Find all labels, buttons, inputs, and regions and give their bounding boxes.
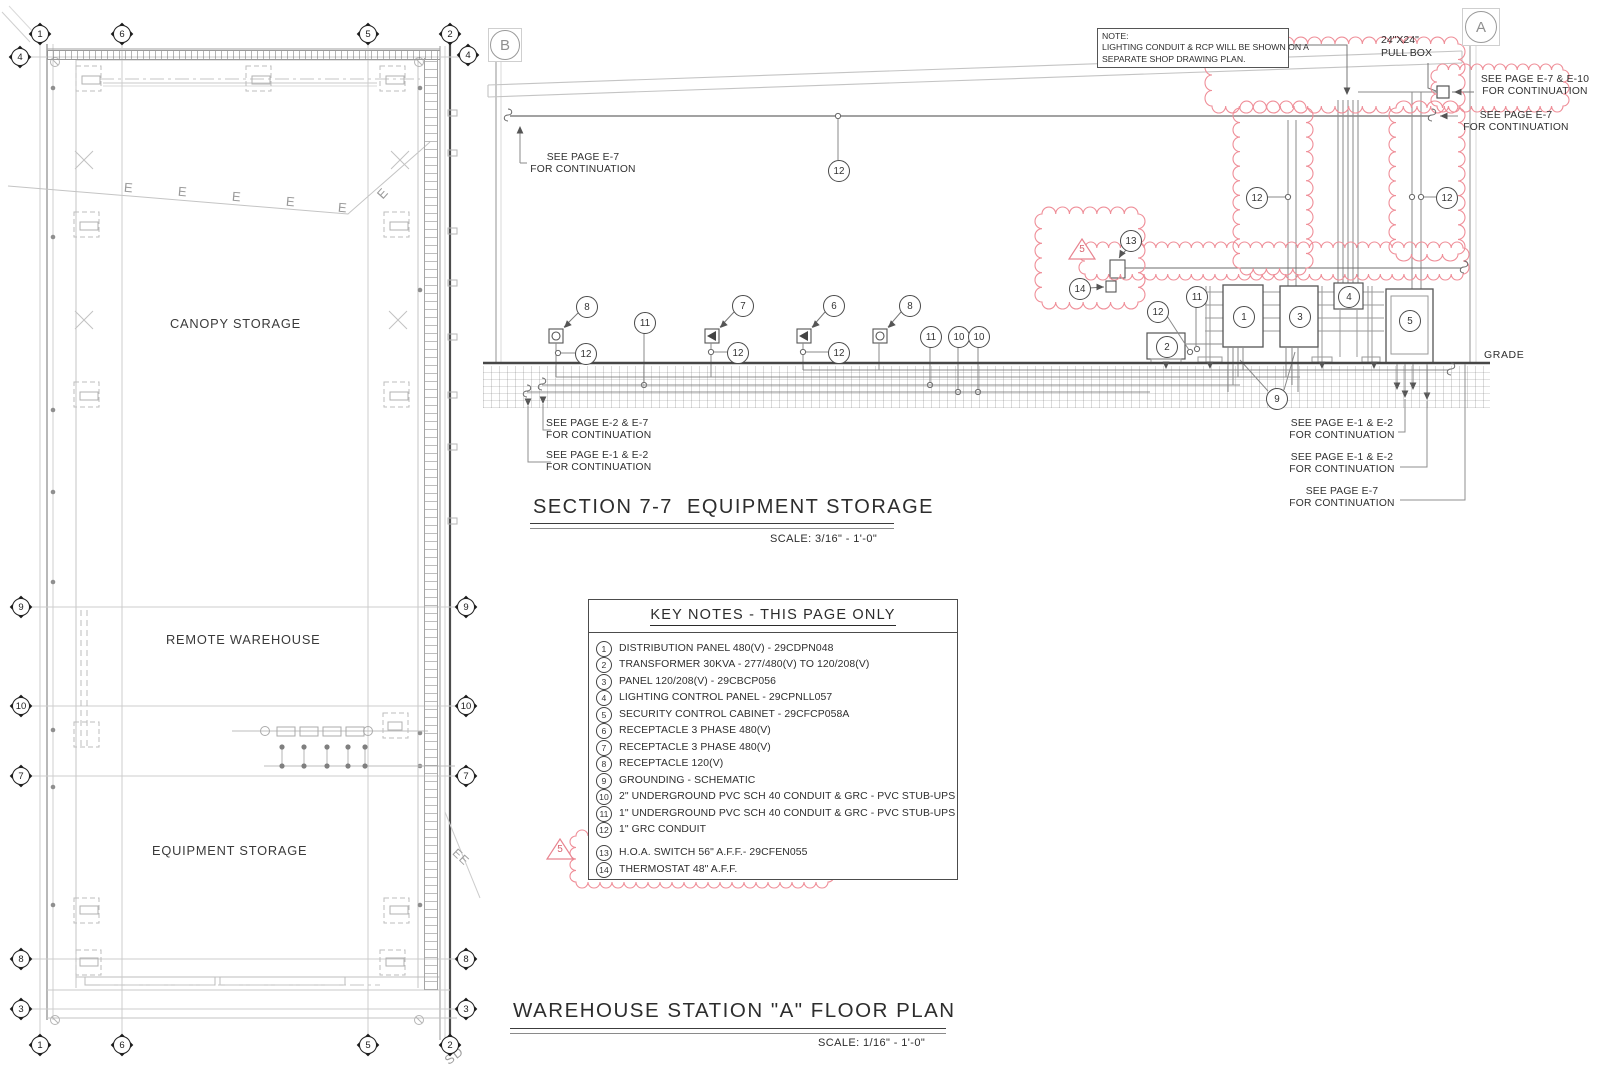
keynote-tag-12: 12 xyxy=(1436,187,1458,209)
grid-marker-7: 7 xyxy=(455,765,477,787)
grid-marker-1: 1 xyxy=(29,1034,51,1056)
grid-marker-3: 3 xyxy=(455,998,477,1020)
key-notes-title: KEY NOTES - THIS PAGE ONLY xyxy=(589,607,957,623)
keynote-tag-3: 3 xyxy=(1289,306,1311,328)
room-label-equipment-storage: EQUIPMENT STORAGE xyxy=(152,843,307,858)
keynote-tag-10: 10 xyxy=(968,326,990,348)
continuation-label-e7-right: SEE PAGE E-7 FOR CONTINUATION xyxy=(1460,110,1572,134)
keynote-item: 13H.O.A. SWITCH 56" A.F.F.- 29CFEN055 xyxy=(596,845,808,860)
arrowheads-and-breaks xyxy=(504,88,1468,407)
e-line-label: E xyxy=(231,189,241,205)
grid-marker-9: 9 xyxy=(455,596,477,618)
keynote-tag-14: 14 xyxy=(1069,278,1091,300)
plan-title: WAREHOUSE STATION "A" FLOOR PLAN xyxy=(513,999,956,1023)
section-scale: SCALE: 3/16" - 1'-0" xyxy=(770,533,877,545)
keynote-tag-11: 11 xyxy=(1186,286,1208,308)
continuation-label-e7-e10: SEE PAGE E-7 & E-10 FOR CONTINUATION xyxy=(1472,74,1598,98)
keynote-tag-1: 1 xyxy=(1233,306,1255,328)
keynote-item: 1DISTRIBUTION PANEL 480(V) - 29CDPN048 xyxy=(596,641,833,656)
keynote-tag-12: 12 xyxy=(828,342,850,364)
continuation-label-e1-e2-r2: SEE PAGE E-1 & E-2 FOR CONTINUATION xyxy=(1286,452,1398,476)
keynote-tag-4: 4 xyxy=(1338,286,1360,308)
section-title-underline xyxy=(530,523,894,529)
drawing-sheet: B A NOTE: LIGHTING CONDUIT & RCP WILL BE… xyxy=(0,0,1600,1082)
keynote-item: 2TRANSFORMER 30KVA - 277/480(V) TO 120/2… xyxy=(596,657,869,672)
grid-marker-4: 4 xyxy=(457,44,479,66)
grid-marker-5: 5 xyxy=(357,1034,379,1056)
keynote-tag-8: 8 xyxy=(576,296,598,318)
pull-box-label: 24"X24" PULL BOX xyxy=(1381,34,1432,60)
section-subgrade-hatch xyxy=(483,366,1490,408)
keynote-item: 6RECEPTACLE 3 PHASE 480(V) xyxy=(596,723,771,738)
grid-marker-7: 7 xyxy=(10,765,32,787)
shop-drawing-note: NOTE: LIGHTING CONDUIT & RCP WILL BE SHO… xyxy=(1097,28,1289,68)
keynote-tag-6: 6 xyxy=(823,295,845,317)
grid-marker-1: 1 xyxy=(29,23,51,45)
section-ref-a: A xyxy=(1465,11,1497,43)
keynote-tag-9: 9 xyxy=(1266,388,1288,410)
keynote-item: 9GROUNDING - SCHEMATIC xyxy=(596,773,755,788)
keynote-tag-12: 12 xyxy=(1246,187,1268,209)
room-label-canopy-storage: CANOPY STORAGE xyxy=(170,316,301,331)
keynote-item: 7RECEPTACLE 3 PHASE 480(V) xyxy=(596,740,771,755)
continuation-label-e7-ceiling: SEE PAGE E-7 FOR CONTINUATION xyxy=(528,152,638,176)
e-line-label: E xyxy=(123,180,133,196)
room-label-remote-warehouse: REMOTE WAREHOUSE xyxy=(166,632,321,647)
grid-marker-4: 4 xyxy=(9,46,31,68)
continuation-label-e1-e2-left: SEE PAGE E-1 & E-2 FOR CONTINUATION xyxy=(546,450,646,474)
keynote-tag-11: 11 xyxy=(920,326,942,348)
keynote-item: 8RECEPTACLE 120(V) xyxy=(596,756,723,771)
section-ref-b: B xyxy=(490,30,520,60)
grade-label: GRADE xyxy=(1484,349,1524,361)
e-line-label: E xyxy=(337,200,347,216)
keynote-tag-12: 12 xyxy=(828,160,850,182)
revision-triangle-5: 5 xyxy=(546,838,574,860)
e-line-label: E xyxy=(285,194,295,210)
keynote-tag-8: 8 xyxy=(899,295,921,317)
continuation-label-e7-bottom: SEE PAGE E-7 FOR CONTINUATION xyxy=(1286,486,1398,510)
keynote-item: 111" UNDERGROUND PVC SCH 40 CONDUIT & GR… xyxy=(596,806,955,821)
e-line-label: E xyxy=(177,184,187,200)
keynote-tag-2: 2 xyxy=(1156,336,1178,358)
keynote-tag-13: 13 xyxy=(1120,230,1142,252)
keynote-item: 121" GRC CONDUIT xyxy=(596,822,706,837)
grid-marker-2: 2 xyxy=(439,1034,461,1056)
grid-marker-8: 8 xyxy=(455,948,477,970)
keynote-tag-5: 5 xyxy=(1399,310,1421,332)
note-line: NOTE: xyxy=(1102,31,1284,42)
grid-marker-3: 3 xyxy=(10,998,32,1020)
plan-top-wall-hatch xyxy=(47,50,440,60)
plan-title-underline xyxy=(510,1028,946,1034)
keynote-tag-10: 10 xyxy=(948,326,970,348)
keynote-item: 3PANEL 120/208(V) - 29CBCP056 xyxy=(596,674,776,689)
keynote-tag-7: 7 xyxy=(732,295,754,317)
grid-marker-6: 6 xyxy=(111,23,133,45)
section-title: SECTION 7-7 EQUIPMENT STORAGE xyxy=(533,496,934,519)
grid-marker-5: 5 xyxy=(357,23,379,45)
plan-scale: SCALE: 1/16" - 1'-0" xyxy=(818,1037,925,1049)
grid-marker-10: 10 xyxy=(10,695,32,717)
keynote-tag-12: 12 xyxy=(1147,301,1169,323)
keynote-tag-12: 12 xyxy=(727,342,749,364)
grid-marker-10: 10 xyxy=(455,695,477,717)
floor-plan-linework xyxy=(2,6,480,1042)
pull-box-text: PULL BOX xyxy=(1381,47,1432,60)
keynote-item: 102" UNDERGROUND PVC SCH 40 CONDUIT & GR… xyxy=(596,789,955,804)
continuation-label-e2-e7: SEE PAGE E-2 & E-7 FOR CONTINUATION xyxy=(546,418,646,442)
grid-marker-6: 6 xyxy=(111,1034,133,1056)
grid-marker-2: 2 xyxy=(439,23,461,45)
keynote-tag-12: 12 xyxy=(575,343,597,365)
note-line: LIGHTING CONDUIT & RCP WILL BE SHOWN ON … xyxy=(1102,42,1284,53)
revision-triangle-5: 5 xyxy=(1068,238,1096,260)
grid-marker-8: 8 xyxy=(10,948,32,970)
keynote-tag-11: 11 xyxy=(634,312,656,334)
keynote-item: 4LIGHTING CONTROL PANEL - 29CPNLL057 xyxy=(596,690,832,705)
grid-marker-9: 9 xyxy=(10,596,32,618)
continuation-label-e1-e2-r1: SEE PAGE E-1 & E-2 FOR CONTINUATION xyxy=(1286,418,1398,442)
keynote-item: 14THERMOSTAT 48" A.F.F. xyxy=(596,862,737,877)
keynote-item: 5SECURITY CONTROL CABINET - 29CFCP058A xyxy=(596,707,849,722)
plan-right-wall-hatch xyxy=(424,58,438,990)
key-notes-divider xyxy=(589,632,957,633)
note-line: SEPARATE SHOP DRAWING PLAN. xyxy=(1102,54,1284,65)
pull-box-size: 24"X24" xyxy=(1381,34,1432,47)
